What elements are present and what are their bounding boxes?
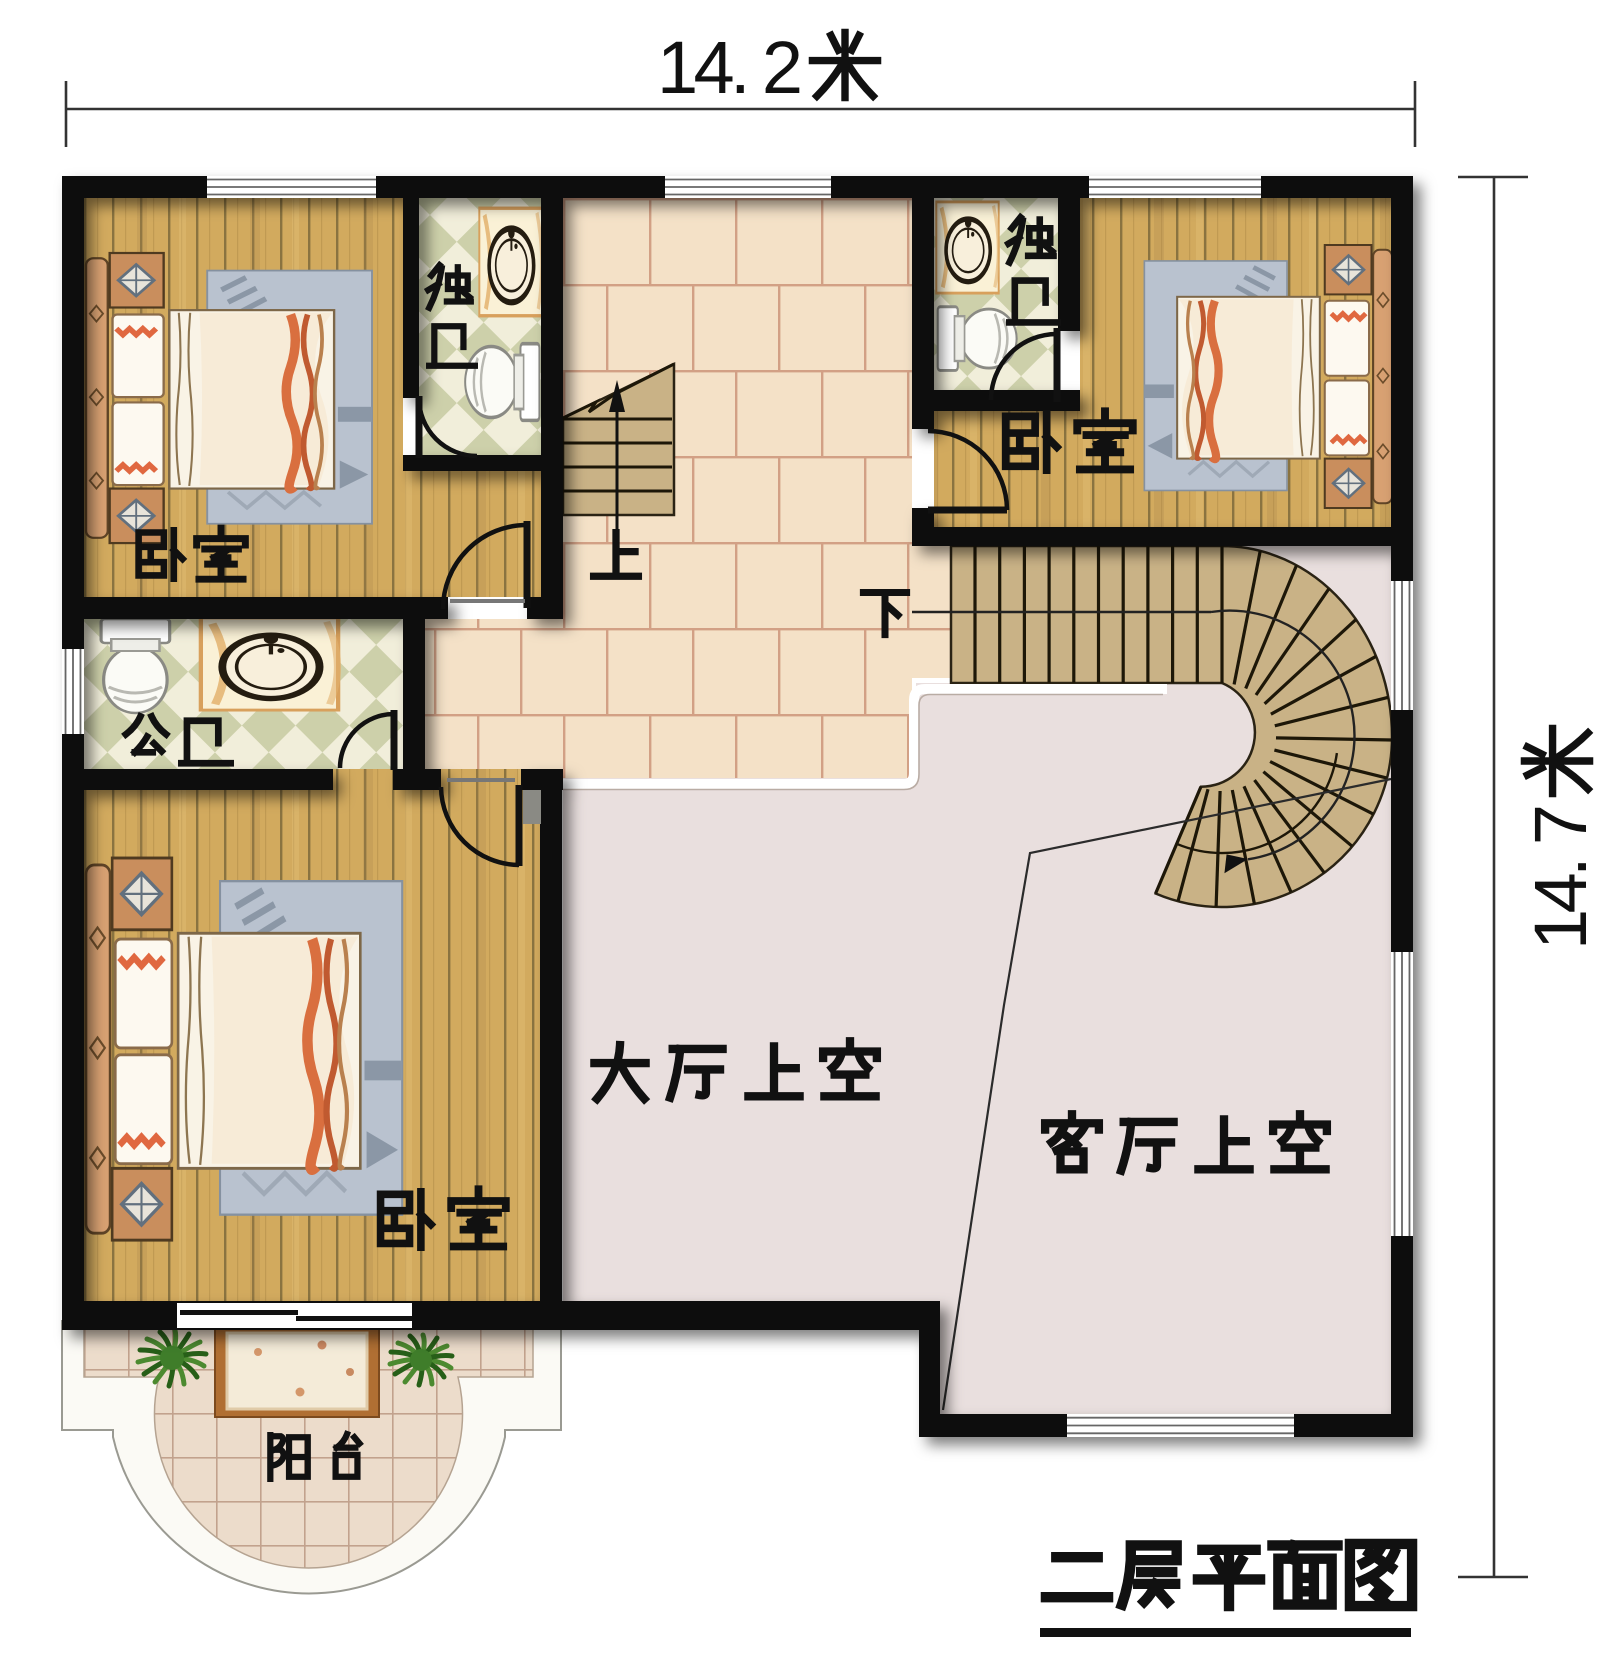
svg-text:14. 7: 14. 7 <box>1519 804 1602 950</box>
svg-text:14. 2: 14. 2 <box>657 26 803 109</box>
